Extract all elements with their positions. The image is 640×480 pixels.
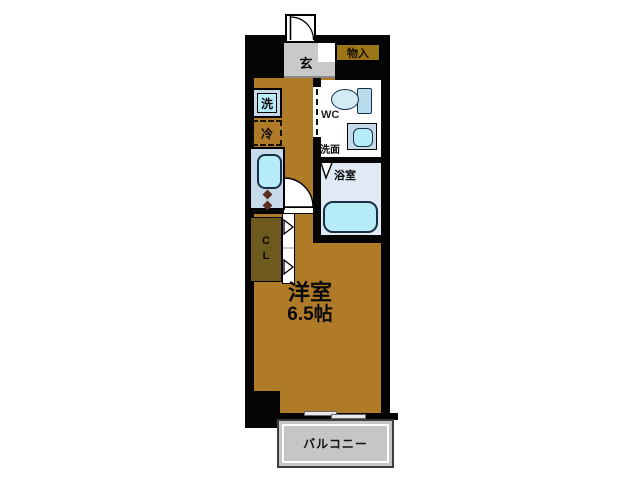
room-label: 洋室 6.5帖 <box>258 281 362 326</box>
washing-machine: 洗 <box>252 88 282 118</box>
fridge-space: 冷 <box>252 120 282 146</box>
entrance-door <box>285 14 316 43</box>
closet-label: CL <box>260 235 272 265</box>
storage-label: 物入 <box>347 45 369 61</box>
entrance-door-swing-icon <box>287 16 314 41</box>
stove-burner-icon <box>263 190 273 200</box>
room-name: 洋室 <box>258 281 362 305</box>
wall <box>381 80 390 420</box>
washer-label: 洗 <box>261 95 273 112</box>
bath-door-icon <box>320 162 334 180</box>
washstand <box>347 123 377 150</box>
storage-box: 物入 <box>335 43 381 62</box>
wall <box>245 43 284 78</box>
kitchen-sink <box>257 154 282 189</box>
wall <box>245 391 280 428</box>
bathroom-label: 浴室 <box>334 167 374 183</box>
fridge-label: 冷 <box>261 125 273 142</box>
bathtub-icon <box>323 201 378 233</box>
floorplan: 物入 玄 洗 冷 CL WC <box>0 0 640 480</box>
toilet-door <box>313 87 321 137</box>
closet-box: CL <box>250 217 282 282</box>
balcony-area: バルコニー <box>277 419 394 468</box>
wall <box>321 235 390 243</box>
closet-door <box>282 213 295 284</box>
entrance-label: 玄 <box>284 53 328 72</box>
wall <box>381 43 390 80</box>
washroom-label: 洗面 <box>320 141 350 156</box>
toilet-label: WC <box>321 109 345 121</box>
room-size: 6.5帖 <box>258 305 362 326</box>
toilet-tank-icon <box>357 88 372 114</box>
stove-burner-icon <box>263 201 273 211</box>
room-door-swing-icon <box>283 177 314 208</box>
closet-door-arrows-icon <box>283 214 294 283</box>
wall <box>316 35 390 43</box>
toilet-bowl-icon <box>331 89 359 110</box>
kitchen-unit <box>249 147 285 210</box>
wall <box>245 35 285 43</box>
balcony-label: バルコニー <box>279 435 392 452</box>
